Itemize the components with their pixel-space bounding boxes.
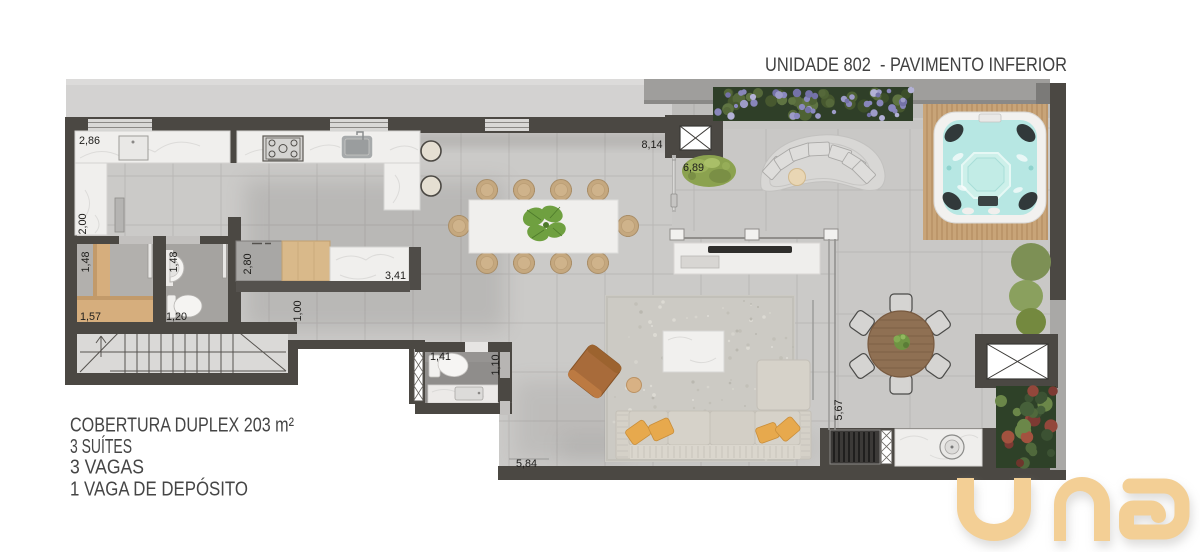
svg-text:1,20: 1,20 [166, 311, 187, 323]
svg-text:6,89: 6,89 [683, 162, 704, 174]
svg-text:1,57: 1,57 [80, 311, 101, 323]
svg-text:2,00: 2,00 [77, 213, 89, 234]
svg-text:UNIDADE 802 - PAVIMENTO INFER: UNIDADE 802 - PAVIMENTO INFERIOR [765, 54, 1067, 76]
svg-text:3 SUÍTES: 3 SUÍTES [70, 435, 132, 458]
svg-text:1,00: 1,00 [292, 300, 304, 321]
svg-text:COBERTURA DUPLEX 203 m²: COBERTURA DUPLEX 203 m² [70, 415, 294, 437]
svg-text:1 VAGA DE DEPÓSITO: 1 VAGA DE DEPÓSITO [70, 478, 248, 501]
svg-text:2,80: 2,80 [242, 253, 254, 274]
svg-text:5,84: 5,84 [516, 458, 537, 470]
svg-text:2,86: 2,86 [79, 135, 100, 147]
svg-text:1,41: 1,41 [430, 351, 451, 363]
svg-text:1,48: 1,48 [80, 251, 92, 272]
svg-text:1,10: 1,10 [490, 354, 502, 375]
svg-text:8,14: 8,14 [641, 139, 662, 151]
svg-text:5,67: 5,67 [833, 399, 845, 420]
svg-text:3 VAGAS: 3 VAGAS [70, 457, 144, 479]
svg-text:1,48: 1,48 [168, 251, 180, 272]
svg-text:3,41: 3,41 [385, 270, 406, 282]
